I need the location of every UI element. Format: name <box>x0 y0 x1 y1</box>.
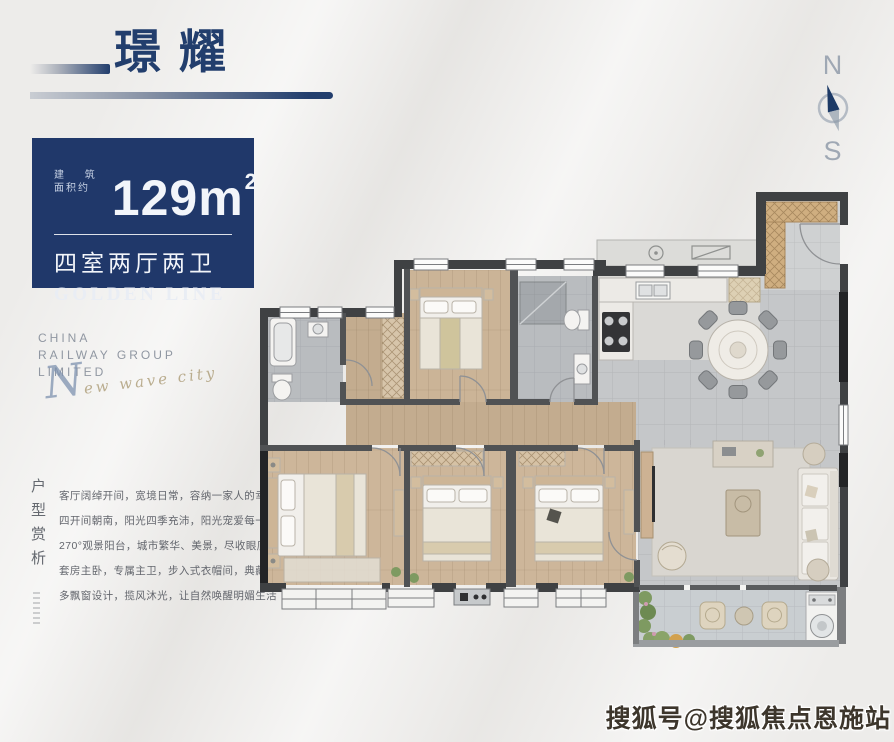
floor-plan-image <box>248 190 860 662</box>
area-label-line1: 建 筑 <box>54 169 104 182</box>
title-dash-decor <box>30 64 110 74</box>
page-title: 璟耀 <box>114 24 244 80</box>
watermark: 搜狐号@搜狐焦点恩施站 <box>606 699 891 735</box>
area-label: 建 筑 面积约 <box>54 169 104 195</box>
area-value: 129m2 <box>112 156 258 224</box>
area-label-line2: 面积约 <box>54 182 104 195</box>
compass-south-label: S <box>796 136 870 166</box>
unit-info-card: 建 筑 面积约 129m2 四室两厅两卫 GOLDEN LINE <box>32 138 254 288</box>
room-layout-text: 四室两厅两卫 <box>54 244 254 278</box>
bedroom-top-furniture <box>410 288 493 369</box>
analysis-vertical-title: 户型赏析 <box>27 478 48 574</box>
series-name: GOLDEN LINE <box>54 284 254 306</box>
brand-script-capital: N <box>42 354 86 409</box>
analysis-micro-caption-decor <box>33 592 40 626</box>
compass-north-label: N <box>796 50 870 80</box>
card-divider <box>54 234 232 235</box>
title-underline-decor <box>30 92 333 99</box>
compass: N S <box>796 50 870 166</box>
brand-script-rest: ew wave city <box>83 363 218 397</box>
floor-plan <box>248 190 860 662</box>
corridor-closet <box>382 318 404 398</box>
compass-needle-icon <box>810 82 856 134</box>
living-room-furniture <box>641 441 838 581</box>
